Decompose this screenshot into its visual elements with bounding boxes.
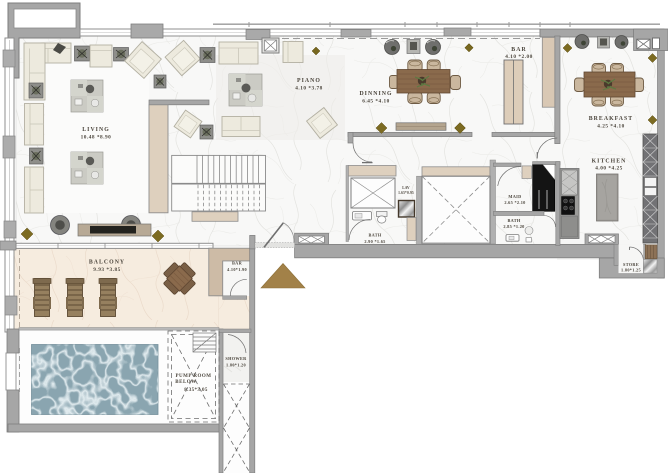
svg-text:2.65 *2.10: 2.65 *2.10 — [504, 200, 525, 205]
svg-text:4.10 *3.78: 4.10 *3.78 — [295, 86, 323, 92]
svg-text:4.25 *4.10: 4.25 *4.10 — [597, 124, 625, 130]
svg-text:BREAKFAST: BREAKFAST — [589, 116, 633, 122]
svg-text:2.90 *1.65: 2.90 *1.65 — [364, 239, 385, 244]
svg-text:1.65*0.95: 1.65*0.95 — [398, 191, 414, 195]
svg-text:6.45 *4.10: 6.45 *4.10 — [362, 99, 390, 105]
svg-text:PIANO: PIANO — [297, 78, 321, 84]
svg-text:BATH: BATH — [368, 233, 381, 238]
svg-text:4.10*1.90: 4.10*1.90 — [227, 267, 247, 272]
svg-text:BAR: BAR — [232, 261, 243, 266]
svg-text:4.10 *2.00: 4.10 *2.00 — [505, 54, 533, 60]
svg-text:1.80*1.20: 1.80*1.20 — [226, 363, 246, 368]
svg-text:BAR: BAR — [511, 47, 526, 53]
svg-text:BELOW: BELOW — [175, 380, 196, 385]
svg-text:LAV: LAV — [402, 186, 410, 190]
svg-text:SHOWER: SHOWER — [225, 356, 247, 361]
svg-text:1.80*1.25: 1.80*1.25 — [621, 268, 641, 273]
svg-text:4.00 *4.25: 4.00 *4.25 — [595, 166, 623, 172]
svg-text:8.35*3.05: 8.35*3.05 — [184, 388, 208, 393]
svg-text:BALCONY: BALCONY — [89, 260, 125, 266]
svg-text:KITCHEN: KITCHEN — [592, 159, 627, 165]
svg-text:STORE: STORE — [623, 262, 639, 267]
svg-text:PUMP ROOM: PUMP ROOM — [175, 374, 211, 379]
svg-text:BATH: BATH — [507, 218, 520, 223]
svg-text:DINNING: DINNING — [359, 91, 392, 97]
svg-text:9.93 *3.85: 9.93 *3.85 — [93, 267, 121, 273]
svg-text:MAID: MAID — [508, 194, 521, 199]
svg-text:2.85 *1.20: 2.85 *1.20 — [503, 224, 524, 229]
svg-text:10.48 *8.90: 10.48 *8.90 — [81, 135, 112, 141]
svg-text:LIVING: LIVING — [82, 127, 110, 133]
